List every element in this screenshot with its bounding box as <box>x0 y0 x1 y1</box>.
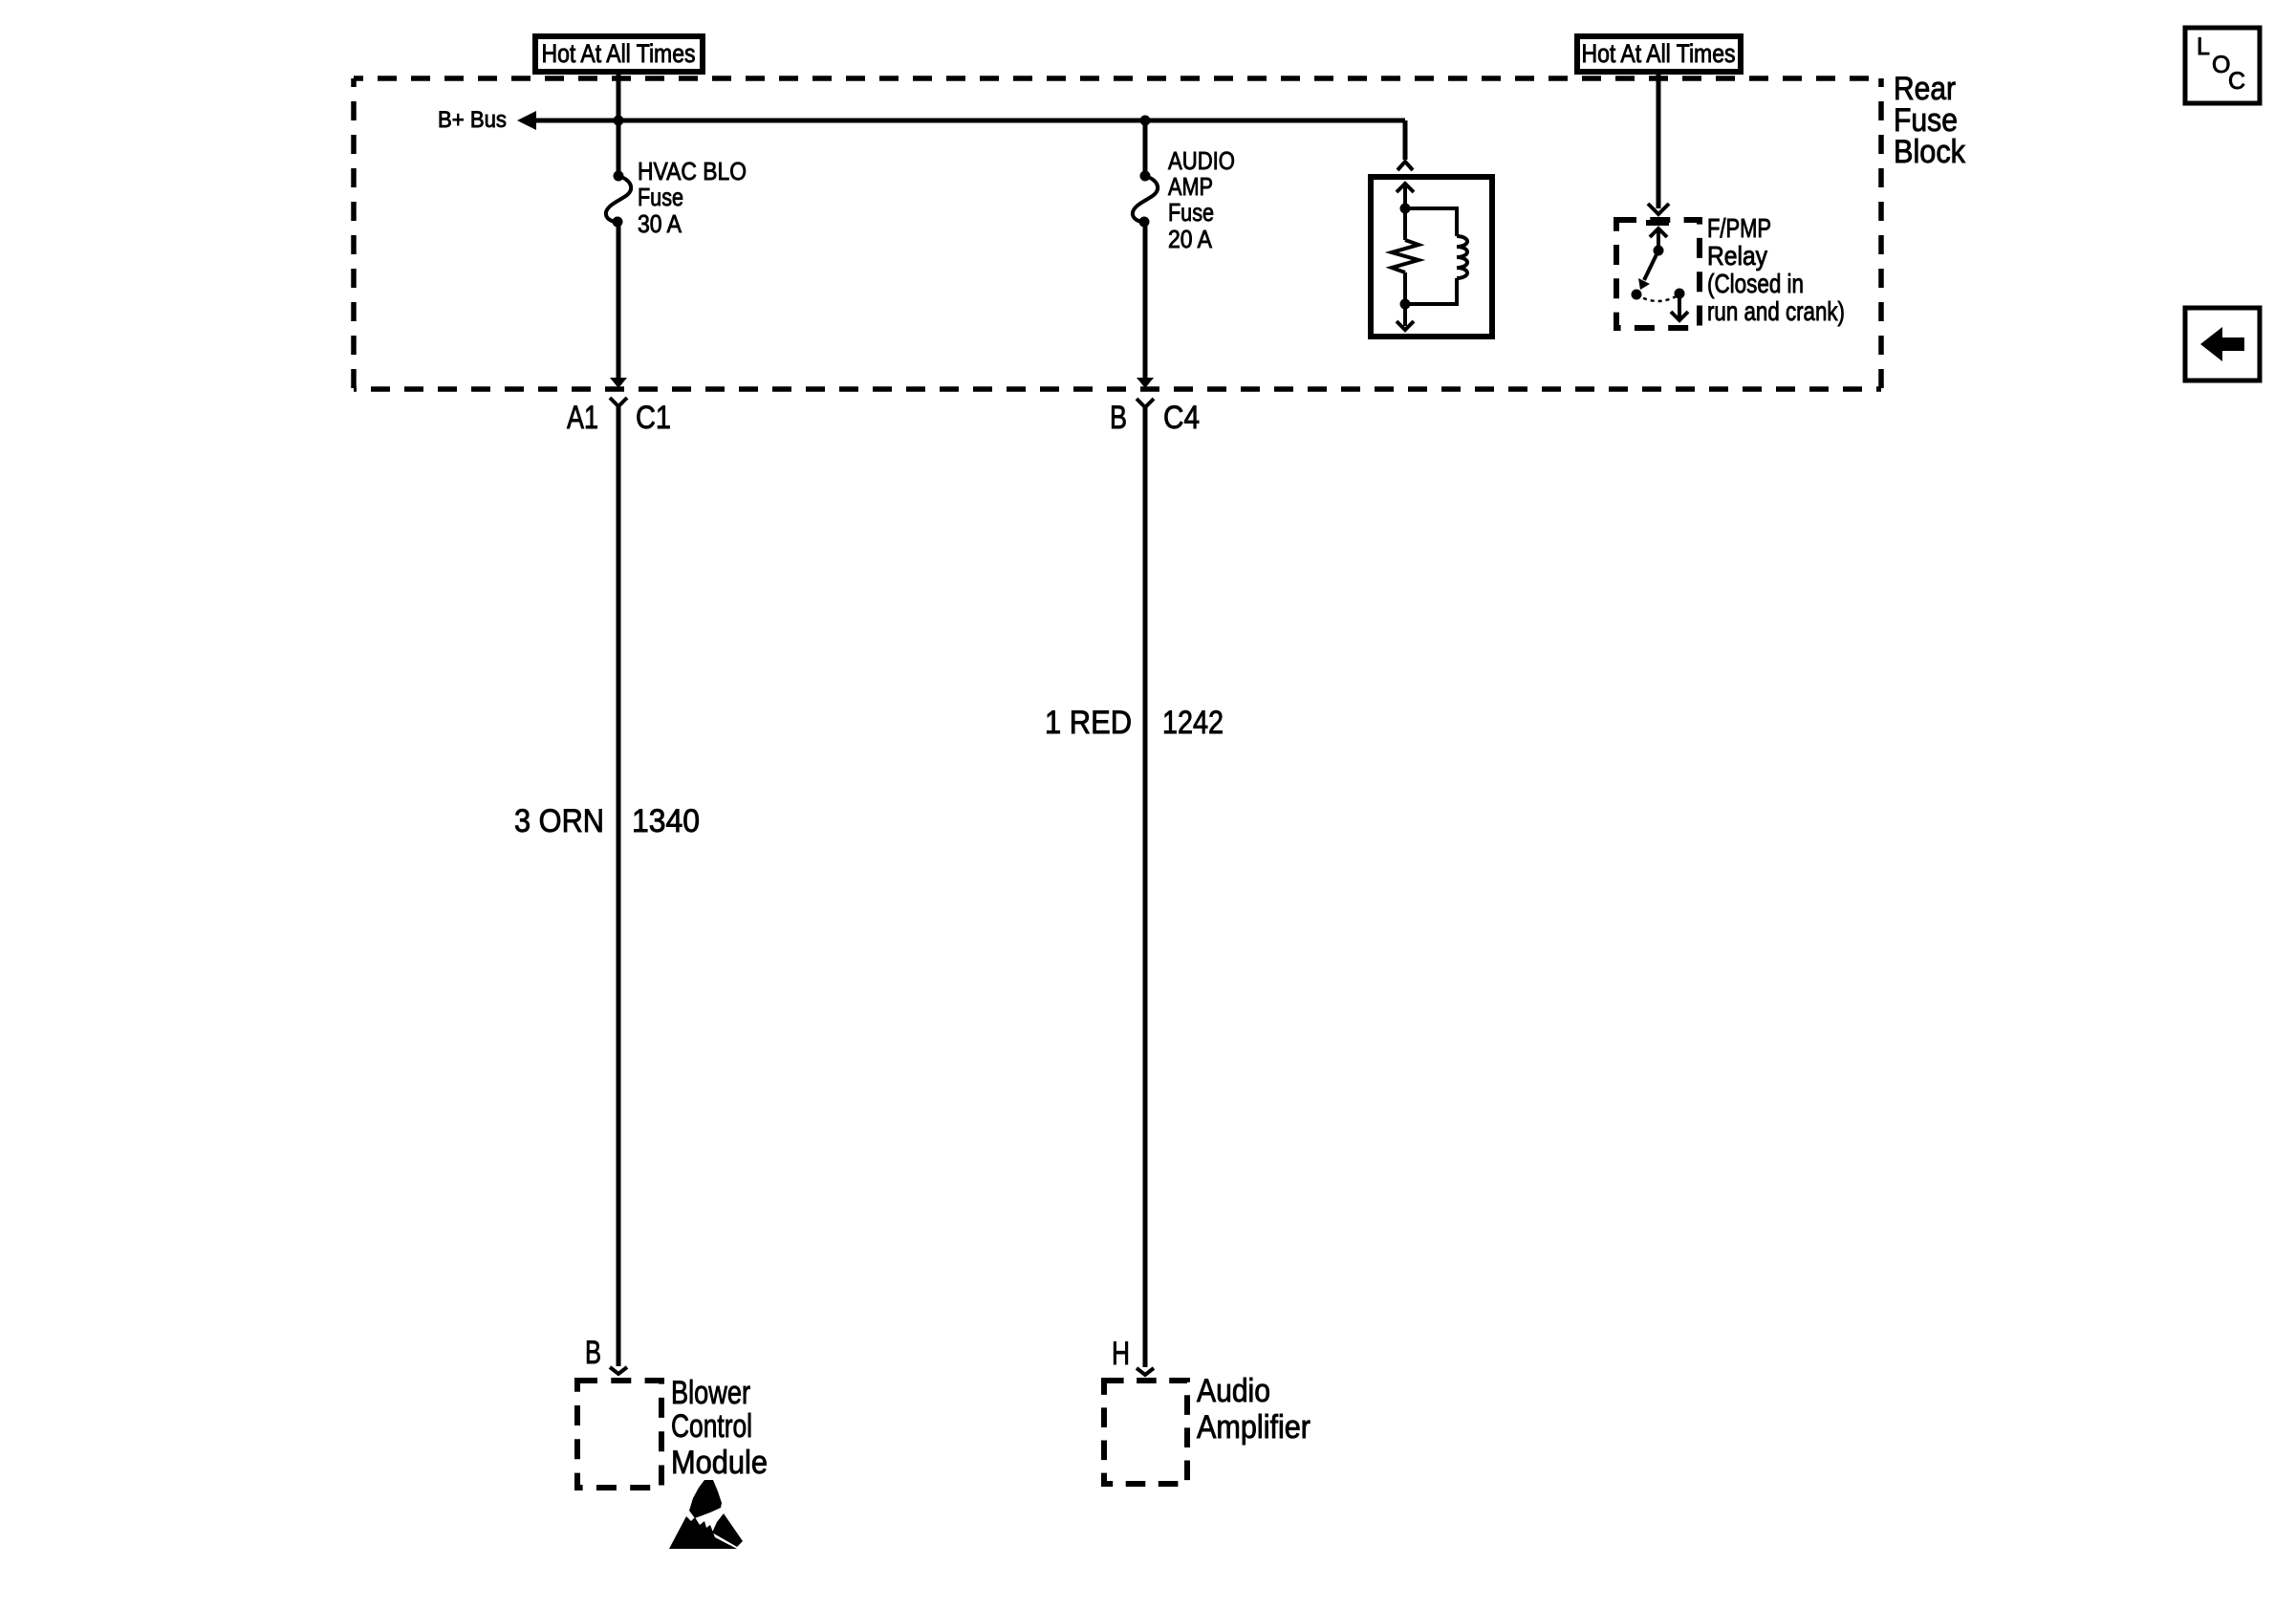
svg-text:Relay: Relay <box>1707 241 1767 271</box>
svg-text:20 A: 20 A <box>1168 225 1213 253</box>
svg-text:Audio: Audio <box>1197 1373 1270 1409</box>
svg-text:Block: Block <box>1894 134 1966 170</box>
svg-text:B+ Bus: B+ Bus <box>438 107 507 133</box>
svg-text:C1: C1 <box>636 400 671 436</box>
svg-text:A1: A1 <box>567 400 598 436</box>
svg-text:Hot At All Times: Hot At All Times <box>542 39 696 68</box>
svg-text:AMP: AMP <box>1168 172 1213 201</box>
svg-text:H: H <box>1112 1336 1130 1372</box>
svg-text:3 ORN: 3 ORN <box>514 803 604 839</box>
svg-text:Module: Module <box>671 1445 768 1481</box>
svg-text:1242: 1242 <box>1162 705 1224 741</box>
svg-text:run and crank): run and crank) <box>1707 296 1845 326</box>
svg-text:B: B <box>1110 400 1127 436</box>
svg-text:1340: 1340 <box>632 803 700 839</box>
svg-text:AUDIO: AUDIO <box>1168 146 1235 175</box>
svg-text:Amplifier: Amplifier <box>1197 1409 1310 1446</box>
svg-text:Blower: Blower <box>671 1375 750 1411</box>
svg-text:C: C <box>2228 68 2245 95</box>
svg-text:Fuse: Fuse <box>1168 198 1214 227</box>
svg-text:L: L <box>2197 33 2210 60</box>
svg-text:30 A: 30 A <box>638 209 682 238</box>
svg-text:F/PMP: F/PMP <box>1707 213 1771 243</box>
svg-text:Fuse: Fuse <box>638 183 683 211</box>
svg-text:HVAC BLO: HVAC BLO <box>638 157 747 185</box>
svg-text:C4: C4 <box>1163 400 1200 436</box>
svg-text:1 RED: 1 RED <box>1045 705 1132 741</box>
svg-text:B: B <box>585 1335 601 1371</box>
svg-text:Control: Control <box>671 1408 752 1445</box>
svg-text:Hot At All Times: Hot At All Times <box>1582 39 1736 68</box>
svg-text:(Closed in: (Closed in <box>1707 269 1804 298</box>
